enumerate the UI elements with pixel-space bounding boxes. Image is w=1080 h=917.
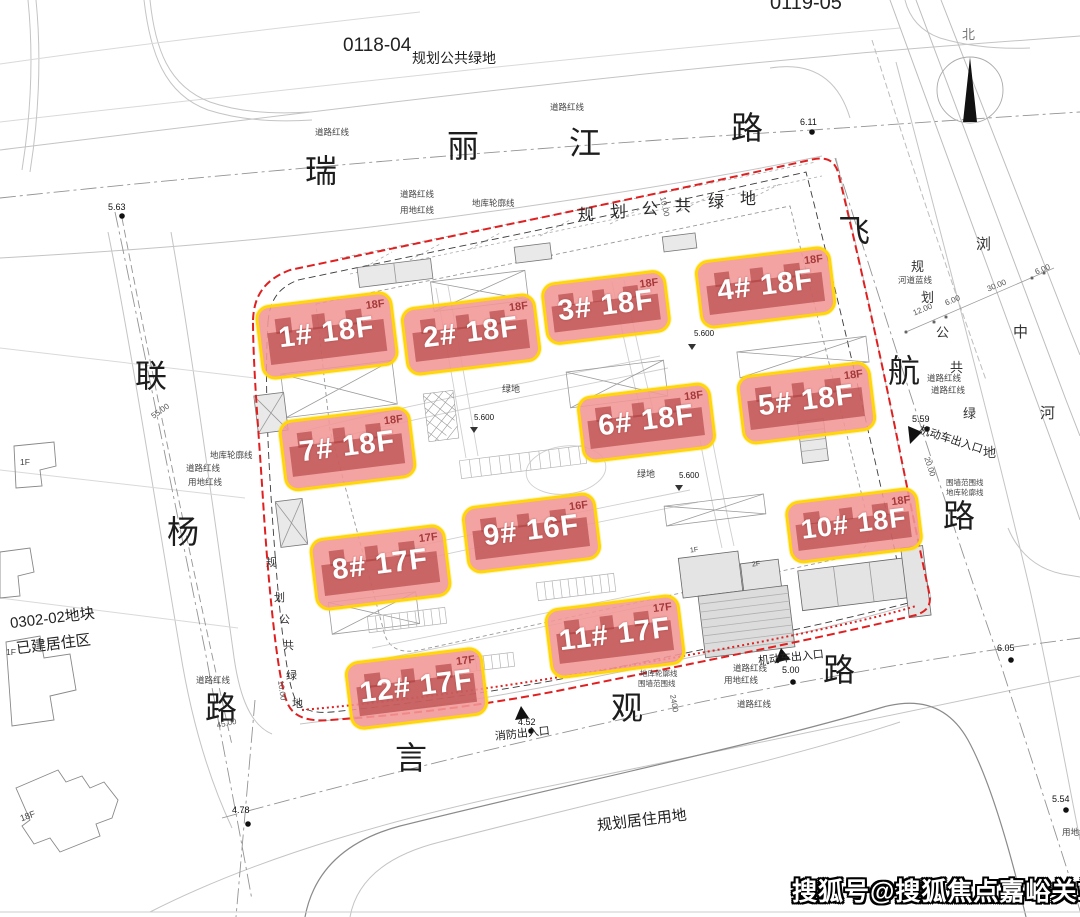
annotation-road-redline: 道路红线 [737, 700, 771, 709]
east-green-char-0: 规 [911, 260, 924, 273]
annotation-wall-line: 围墙范围线 [638, 680, 676, 688]
annotation-garage-outline: 地库轮廓线 [472, 199, 515, 208]
elevation-6-11: 6.11 [800, 118, 817, 127]
elevation-6-05: 6.05 [997, 644, 1015, 653]
facility-2f-label: 2F [752, 561, 761, 569]
elevation-5-00: 5.00 [782, 666, 800, 675]
river-name-char-1: 中 [1013, 326, 1028, 341]
annotation-road-redline: 道路红线 [315, 128, 349, 137]
annotation-land-redline: 用地红线 [1062, 828, 1080, 837]
west-green-char-0: 规 [266, 558, 277, 569]
annotation-river-blueline: 河道蓝线 [898, 276, 932, 285]
annotation-road-redline: 道路红线 [400, 190, 434, 199]
annotation-wall-line: 围墙范围线 [946, 479, 984, 487]
elevation-5-59: 5.59 [912, 415, 930, 424]
west-green-char-2: 公 [279, 615, 290, 626]
top-green-char-2: 公 [642, 202, 658, 218]
spot-level: 5.600 [679, 472, 699, 480]
crosshatch-pad [423, 390, 459, 441]
elevation-4-78: 4.78 [232, 806, 250, 815]
facility-1f-label: 1F [690, 547, 699, 555]
annotation-road-redline: 道路红线 [550, 103, 584, 112]
street-south-char-0: 言 [395, 742, 427, 774]
existing-building-1f-label: 1F [6, 648, 16, 657]
top-green-char-0: 规 [578, 208, 594, 224]
annotation-road-redline: 道路红线 [196, 676, 230, 685]
north-arrow [937, 57, 1003, 123]
road-network [0, 0, 1080, 912]
annotation-road-redline: 道路红线 [186, 464, 220, 473]
top-green-char-1: 划 [610, 205, 626, 221]
west-green-char-3: 共 [283, 641, 294, 652]
spot-level: 5.600 [694, 330, 714, 338]
spot-level: 5.600 [474, 414, 494, 422]
street-east-char-0: 飞 [838, 215, 870, 247]
annotation-green: 绿地 [637, 470, 655, 479]
site-plan: 18F 1# 18F 18F 2# 18F 18F 3# 18F 18F 4# … [0, 0, 1080, 917]
dim-10: 10.00 [276, 680, 287, 701]
parcel-use-top-left: 规划公共绿地 [412, 50, 496, 68]
north-label: 北 [962, 28, 975, 41]
street-north-char-1: 丽 [447, 130, 479, 162]
annotation-land-redline: 用地红线 [724, 676, 758, 685]
elevation-5-54: 5.54 [1052, 795, 1070, 804]
west-green-char-5: 地 [292, 699, 303, 710]
west-green-char-1: 划 [274, 593, 285, 604]
east-green-char-5: 地 [983, 446, 996, 459]
dim-2400: 2400 [668, 694, 679, 713]
elevation-4-52: 4.52 [518, 718, 536, 727]
river-name-char-2: 河 [1040, 407, 1055, 422]
building-label: 3# 18F [544, 282, 667, 329]
street-north-char-3: 路 [731, 112, 763, 144]
annotation-garage-outline: 地库轮廓线 [640, 670, 678, 678]
existing-building-1f-label: 1F [20, 458, 30, 467]
river-name-char-0: 浏 [976, 238, 991, 253]
elevation-dots [119, 129, 1069, 827]
elevation-5-63: 5.63 [108, 203, 126, 212]
street-north-char-0: 瑞 [305, 155, 337, 187]
plan-linework [0, 0, 1080, 917]
street-east-char-2: 路 [943, 500, 975, 532]
annotation-land-redline: 用地红线 [188, 478, 222, 487]
top-green-char-3: 共 [675, 199, 691, 215]
annotation-garage-outline: 地库轮廓线 [946, 489, 984, 497]
street-west-char-1: 杨 [167, 516, 199, 548]
top-green-char-5: 地 [740, 192, 756, 208]
street-south-char-2: 路 [823, 654, 855, 686]
east-green-char-2: 公 [936, 326, 949, 339]
parcel-code-0118-04: 0118-04 [343, 34, 411, 58]
top-green-char-4: 绿 [708, 195, 724, 211]
street-north-char-2: 江 [569, 127, 601, 159]
east-green-char-4: 绿 [963, 407, 976, 420]
annotation-road-redline: 道路红线 [931, 386, 965, 395]
street-west-char-0: 联 [135, 360, 167, 392]
street-east-char-1: 航 [888, 355, 920, 387]
annotation-green: 绿地 [502, 385, 520, 394]
annotation-road-redline: 道路红线 [927, 374, 961, 383]
watermark: 搜狐号@搜狐焦点嘉峪关站 [792, 872, 1080, 908]
parcel-code-0119-05: 0119-05 [770, 0, 842, 16]
annotation-land-redline: 用地红线 [400, 206, 434, 215]
annotation-garage-outline: 地库轮廓线 [210, 451, 253, 460]
west-green-char-4: 绿 [286, 671, 297, 682]
street-south-char-1: 观 [611, 692, 643, 724]
